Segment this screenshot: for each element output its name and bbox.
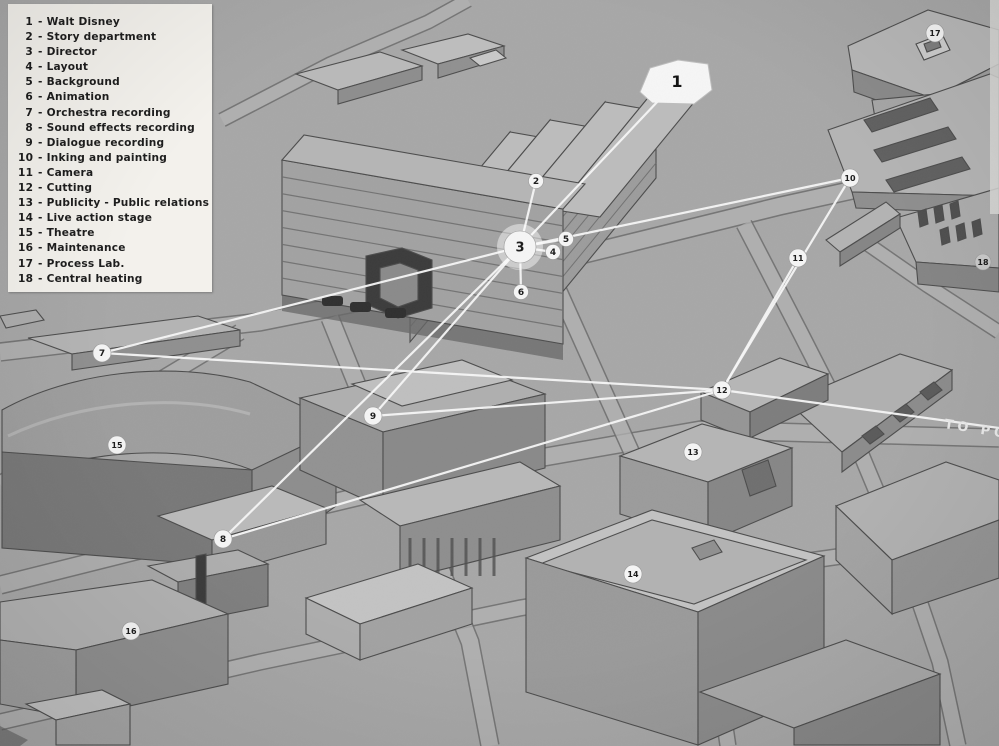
legend-item-dash: - bbox=[33, 151, 47, 166]
legend-item-number: 15 bbox=[18, 226, 33, 241]
legend-box: 1-Walt Disney2-Story department3-Directo… bbox=[8, 4, 212, 292]
legend-item-dash: - bbox=[33, 181, 47, 196]
legend-item-dash: - bbox=[33, 30, 47, 45]
legend-item-number: 3 bbox=[18, 45, 33, 60]
legend-item-dash: - bbox=[33, 166, 47, 181]
legend-item-number: 7 bbox=[18, 106, 33, 121]
legend-item-dash: - bbox=[33, 121, 47, 136]
legend-item-label: Animation bbox=[47, 90, 110, 105]
legend-item-number: 1 bbox=[18, 15, 33, 30]
legend-item-dash: - bbox=[33, 257, 47, 272]
legend-item-dash: - bbox=[33, 272, 47, 287]
legend-item-number: 2 bbox=[18, 30, 33, 45]
legend-item-9: 9-Dialogue recording bbox=[18, 136, 206, 151]
legend-item-11: 11-Camera bbox=[18, 166, 206, 181]
legend-item-14: 14-Live action stage bbox=[18, 211, 206, 226]
legend-item-dash: - bbox=[33, 60, 47, 75]
studio-lot-photo: TO PO123456789101112131415161718 1-Walt … bbox=[0, 0, 999, 746]
legend-item-18: 18-Central heating bbox=[18, 272, 206, 287]
legend-item-dash: - bbox=[33, 241, 47, 256]
legend-item-label: Layout bbox=[47, 60, 89, 75]
legend-item-label: Director bbox=[47, 45, 97, 60]
legend-item-number: 6 bbox=[18, 90, 33, 105]
legend-item-label: Camera bbox=[47, 166, 94, 181]
legend-item-number: 4 bbox=[18, 60, 33, 75]
legend-item-dash: - bbox=[33, 90, 47, 105]
legend-item-number: 16 bbox=[18, 241, 33, 256]
legend-item-label: Process Lab. bbox=[47, 257, 125, 272]
legend-item-number: 17 bbox=[18, 257, 33, 272]
legend-item-16: 16-Maintenance bbox=[18, 241, 206, 256]
legend-item-13: 13-Publicity - Public relations bbox=[18, 196, 206, 211]
legend-item-label: Central heating bbox=[47, 272, 143, 287]
legend-item-number: 10 bbox=[18, 151, 33, 166]
legend-item-number: 14 bbox=[18, 211, 33, 226]
legend-item-number: 12 bbox=[18, 181, 33, 196]
legend-item-label: Dialogue recording bbox=[47, 136, 165, 151]
legend-item-label: Maintenance bbox=[47, 241, 126, 256]
legend-item-label: Theatre bbox=[47, 226, 95, 241]
legend-item-dash: - bbox=[33, 45, 47, 60]
legend-item-dash: - bbox=[33, 75, 47, 90]
legend-item-15: 15-Theatre bbox=[18, 226, 206, 241]
legend-item-17: 17-Process Lab. bbox=[18, 257, 206, 272]
legend-item-dash: - bbox=[33, 15, 47, 30]
legend-item-label: Walt Disney bbox=[47, 15, 120, 30]
legend-item-label: Live action stage bbox=[47, 211, 152, 226]
legend-item-number: 11 bbox=[18, 166, 33, 181]
legend-item-number: 8 bbox=[18, 121, 33, 136]
legend-item-5: 5-Background bbox=[18, 75, 206, 90]
legend-item-label: Publicity - Public relations bbox=[47, 196, 210, 211]
legend-item-8: 8-Sound effects recording bbox=[18, 121, 206, 136]
legend-item-10: 10-Inking and painting bbox=[18, 151, 206, 166]
legend-item-2: 2-Story department bbox=[18, 30, 206, 45]
legend-item-label: Orchestra recording bbox=[47, 106, 171, 121]
legend-item-dash: - bbox=[33, 211, 47, 226]
legend-item-dash: - bbox=[33, 196, 47, 211]
legend-item-number: 18 bbox=[18, 272, 33, 287]
legend-item-number: 9 bbox=[18, 136, 33, 151]
legend-item-label: Sound effects recording bbox=[47, 121, 195, 136]
legend-item-dash: - bbox=[33, 106, 47, 121]
legend-item-dash: - bbox=[33, 136, 47, 151]
legend-item-label: Story department bbox=[47, 30, 157, 45]
legend-item-1: 1-Walt Disney bbox=[18, 15, 206, 30]
legend-item-3: 3-Director bbox=[18, 45, 206, 60]
legend-item-dash: - bbox=[33, 226, 47, 241]
legend-item-7: 7-Orchestra recording bbox=[18, 106, 206, 121]
legend-item-number: 13 bbox=[18, 196, 33, 211]
legend-item-12: 12-Cutting bbox=[18, 181, 206, 196]
legend-item-4: 4-Layout bbox=[18, 60, 206, 75]
legend-item-6: 6-Animation bbox=[18, 90, 206, 105]
legend-item-label: Inking and painting bbox=[47, 151, 167, 166]
legend-item-number: 5 bbox=[18, 75, 33, 90]
legend-item-label: Cutting bbox=[47, 181, 93, 196]
legend-item-label: Background bbox=[47, 75, 120, 90]
